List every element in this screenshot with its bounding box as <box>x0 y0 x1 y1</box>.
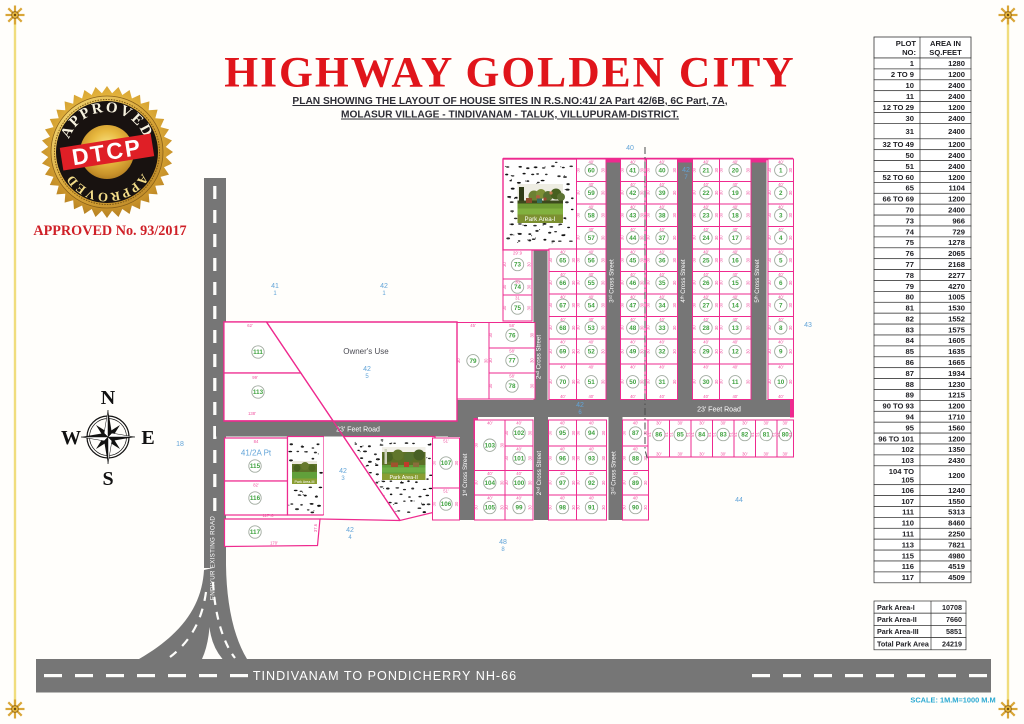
svg-text:30: 30 <box>548 349 553 354</box>
svg-text:40': 40' <box>560 250 566 255</box>
svg-text:84: 84 <box>906 336 915 345</box>
svg-text:3ʳᵈ Cross Street: 3ʳᵈ Cross Street <box>609 259 616 303</box>
svg-text:68: 68 <box>559 325 567 332</box>
svg-text:40': 40' <box>732 227 738 232</box>
svg-text:30: 30 <box>646 235 651 240</box>
svg-text:30: 30 <box>474 480 479 485</box>
svg-text:35: 35 <box>658 280 666 287</box>
svg-text:30: 30 <box>692 302 697 307</box>
svg-text:30: 30 <box>528 455 533 460</box>
svg-text:51': 51' <box>443 489 449 494</box>
svg-text:30: 30 <box>672 235 677 240</box>
svg-text:40': 40' <box>703 250 709 255</box>
svg-text:Park Area-II: Park Area-II <box>389 475 417 481</box>
svg-text:82': 82' <box>253 483 259 488</box>
svg-text:58: 58 <box>588 212 596 219</box>
svg-text:30: 30 <box>672 190 677 195</box>
svg-text:40': 40' <box>630 205 636 210</box>
svg-text:111: 111 <box>902 530 915 539</box>
svg-text:40': 40' <box>659 295 665 300</box>
svg-text:104: 104 <box>485 480 496 487</box>
svg-text:30: 30 <box>528 505 533 510</box>
svg-text:1104: 1104 <box>949 184 966 193</box>
svg-text:11: 11 <box>906 92 915 101</box>
svg-text:40': 40' <box>659 340 665 345</box>
svg-text:32: 32 <box>658 349 666 356</box>
svg-text:25: 25 <box>702 257 710 264</box>
svg-text:30: 30 <box>576 280 581 285</box>
svg-text:40': 40' <box>778 205 784 210</box>
svg-text:103: 103 <box>485 442 496 449</box>
svg-text:30: 30 <box>474 442 479 447</box>
svg-text:30: 30 <box>702 379 710 386</box>
svg-text:HIGHWAY GOLDEN CITY: HIGHWAY GOLDEN CITY <box>224 49 795 97</box>
svg-text:30: 30 <box>746 167 751 172</box>
svg-text:75: 75 <box>514 305 522 312</box>
svg-text:30: 30 <box>576 505 581 510</box>
svg-text:3: 3 <box>779 212 783 219</box>
svg-text:62': 62' <box>247 323 253 328</box>
svg-text:30: 30 <box>672 325 677 330</box>
svg-text:30: 30 <box>767 257 772 262</box>
svg-text:30: 30 <box>620 167 625 172</box>
svg-text:30: 30 <box>640 235 645 240</box>
svg-text:52 TO 60: 52 TO 60 <box>882 173 914 182</box>
svg-text:40': 40' <box>589 447 595 452</box>
svg-text:4ᵗʰ Cross Street: 4ᵗʰ Cross Street <box>680 259 687 303</box>
svg-text:42: 42 <box>576 402 584 409</box>
svg-text:65: 65 <box>906 184 915 193</box>
svg-text:30: 30 <box>622 505 627 510</box>
svg-text:1200: 1200 <box>948 103 965 112</box>
svg-text:30: 30 <box>601 167 606 172</box>
svg-text:40': 40' <box>659 250 665 255</box>
svg-text:40': 40' <box>732 394 738 399</box>
svg-text:30: 30 <box>788 302 793 307</box>
svg-text:10708: 10708 <box>942 603 962 612</box>
svg-text:2168: 2168 <box>948 260 965 269</box>
svg-text:57: 57 <box>588 235 596 242</box>
svg-text:37.6: 37.6 <box>313 523 318 532</box>
svg-text:56: 56 <box>588 257 596 264</box>
svg-text:30: 30 <box>719 257 724 262</box>
svg-text:98: 98 <box>559 505 567 512</box>
svg-text:S: S <box>102 468 113 490</box>
svg-text:81: 81 <box>763 432 771 439</box>
svg-text:30: 30 <box>432 460 437 465</box>
svg-text:53: 53 <box>588 325 596 332</box>
svg-text:46: 46 <box>629 280 637 287</box>
svg-text:91: 91 <box>588 505 596 512</box>
svg-text:30: 30 <box>788 167 793 172</box>
svg-text:30: 30 <box>672 212 677 217</box>
svg-text:30': 30' <box>782 421 788 426</box>
svg-text:52: 52 <box>588 349 596 356</box>
svg-text:83: 83 <box>906 325 914 334</box>
svg-text:88: 88 <box>906 380 914 389</box>
svg-text:40': 40' <box>659 394 665 399</box>
svg-text:40': 40' <box>516 496 522 501</box>
svg-text:30: 30 <box>640 325 645 330</box>
svg-text:40': 40' <box>703 227 709 232</box>
svg-text:24: 24 <box>702 235 710 242</box>
svg-text:40': 40' <box>630 295 636 300</box>
svg-text:115: 115 <box>902 551 915 560</box>
svg-text:40': 40' <box>778 160 784 165</box>
svg-text:30: 30 <box>620 325 625 330</box>
svg-text:30: 30 <box>746 325 751 330</box>
svg-text:30: 30 <box>527 305 532 310</box>
svg-text:40': 40' <box>659 365 665 370</box>
svg-text:30: 30 <box>646 257 651 262</box>
svg-text:30: 30 <box>746 280 751 285</box>
svg-text:40': 40' <box>588 365 594 370</box>
svg-text:30: 30 <box>646 167 651 172</box>
svg-text:85: 85 <box>677 432 685 439</box>
svg-text:6: 6 <box>779 280 783 287</box>
svg-text:1200: 1200 <box>948 173 965 182</box>
svg-text:1230: 1230 <box>948 380 965 389</box>
svg-text:PLAN SHOWING THE LAYOUT OF HOU: PLAN SHOWING THE LAYOUT OF HOUSE SITES I… <box>292 96 727 107</box>
svg-text:30: 30 <box>692 325 697 330</box>
svg-text:30: 30 <box>646 379 651 384</box>
svg-text:18: 18 <box>732 212 740 219</box>
svg-text:30: 30 <box>788 212 793 217</box>
svg-text:86: 86 <box>655 432 663 439</box>
svg-text:74: 74 <box>514 284 522 291</box>
svg-text:107: 107 <box>441 460 452 467</box>
svg-text:5851: 5851 <box>946 627 962 636</box>
svg-text:30: 30 <box>576 212 581 217</box>
svg-text:40: 40 <box>658 167 666 174</box>
svg-text:70: 70 <box>906 206 914 215</box>
svg-text:Park Area-III: Park Area-III <box>295 480 315 484</box>
svg-text:NO:: NO: <box>902 48 916 57</box>
svg-text:30: 30 <box>548 280 553 285</box>
svg-text:30: 30 <box>767 167 772 172</box>
svg-text:42: 42 <box>629 190 637 197</box>
svg-text:22: 22 <box>702 190 710 197</box>
svg-text:40': 40' <box>703 182 709 187</box>
svg-text:99': 99' <box>252 375 258 380</box>
svg-text:1200: 1200 <box>948 195 965 204</box>
svg-text:30: 30 <box>622 480 627 485</box>
svg-text:30: 30 <box>719 167 724 172</box>
svg-text:23' Feet Road: 23' Feet Road <box>697 407 741 414</box>
svg-text:8460: 8460 <box>948 519 965 528</box>
svg-text:40': 40' <box>732 340 738 345</box>
svg-text:40': 40' <box>630 365 636 370</box>
svg-text:30: 30 <box>746 190 751 195</box>
svg-text:40': 40' <box>589 471 595 476</box>
svg-text:15: 15 <box>732 280 740 287</box>
svg-text:73: 73 <box>906 216 914 225</box>
svg-text:30: 30 <box>640 379 645 384</box>
svg-text:30: 30 <box>719 280 724 285</box>
svg-text:36: 36 <box>658 257 666 264</box>
svg-text:7660: 7660 <box>946 615 962 624</box>
svg-text:75: 75 <box>906 238 915 247</box>
svg-text:30: 30 <box>601 325 606 330</box>
svg-text:1ˢᵗ Cross Street: 1ˢᵗ Cross Street <box>462 453 469 496</box>
svg-text:40': 40' <box>589 421 595 426</box>
svg-text:30: 30 <box>601 257 606 262</box>
svg-text:4509: 4509 <box>948 573 965 582</box>
svg-text:40': 40' <box>659 272 665 277</box>
svg-text:40': 40' <box>703 340 709 345</box>
svg-text:30: 30 <box>601 212 606 217</box>
svg-text:2400: 2400 <box>948 92 965 101</box>
svg-text:8: 8 <box>779 325 783 332</box>
svg-text:30: 30 <box>640 349 645 354</box>
svg-text:30: 30 <box>454 501 459 506</box>
svg-text:30: 30 <box>672 167 677 172</box>
svg-text:30: 30 <box>527 262 532 267</box>
svg-text:89: 89 <box>906 391 914 400</box>
svg-text:30: 30 <box>620 235 625 240</box>
svg-text:49: 49 <box>629 349 637 356</box>
svg-text:40': 40' <box>732 182 738 187</box>
svg-text:78: 78 <box>906 271 914 280</box>
svg-text:ENDIYUR EXISTING ROAD: ENDIYUR EXISTING ROAD <box>210 516 217 601</box>
svg-text:30: 30 <box>640 257 645 262</box>
svg-text:40': 40' <box>516 471 522 476</box>
svg-text:86: 86 <box>906 358 914 367</box>
svg-text:40': 40' <box>732 365 738 370</box>
svg-text:95: 95 <box>559 430 567 437</box>
svg-text:89: 89 <box>632 480 640 487</box>
svg-text:30: 30 <box>620 212 625 217</box>
svg-text:30: 30 <box>640 167 645 172</box>
svg-text:30: 30 <box>719 235 724 240</box>
svg-text:30': 30' <box>699 451 705 456</box>
svg-text:30: 30 <box>576 190 581 195</box>
svg-text:30: 30 <box>746 235 751 240</box>
svg-text:AREA IN: AREA IN <box>930 39 961 48</box>
svg-text:79: 79 <box>906 282 914 291</box>
svg-text:26: 26 <box>702 280 710 287</box>
svg-text:55: 55 <box>588 280 596 287</box>
svg-text:30: 30 <box>548 325 553 330</box>
svg-text:33: 33 <box>658 325 666 332</box>
svg-text:13: 13 <box>732 325 740 332</box>
svg-text:42: 42 <box>346 527 354 534</box>
svg-text:81: 81 <box>906 304 915 313</box>
svg-text:30': 30' <box>763 421 769 426</box>
svg-text:30: 30 <box>692 257 697 262</box>
svg-text:32 TO 49: 32 TO 49 <box>882 140 914 149</box>
svg-text:30: 30 <box>576 455 581 460</box>
svg-text:40': 40' <box>630 227 636 232</box>
svg-text:38: 38 <box>658 212 666 219</box>
svg-text:50: 50 <box>906 151 914 160</box>
svg-text:1200: 1200 <box>948 70 965 79</box>
svg-text:30: 30 <box>601 455 606 460</box>
svg-text:40': 40' <box>487 496 493 501</box>
svg-text:37: 37 <box>658 235 666 242</box>
svg-text:30: 30 <box>504 505 509 510</box>
svg-text:76: 76 <box>906 249 914 258</box>
svg-text:45: 45 <box>629 257 637 264</box>
svg-text:79: 79 <box>469 358 477 365</box>
svg-text:170': 170' <box>270 541 278 546</box>
svg-text:30: 30 <box>719 190 724 195</box>
svg-text:115: 115 <box>250 463 261 470</box>
svg-text:1200: 1200 <box>948 471 965 480</box>
svg-text:30': 30' <box>656 451 662 456</box>
svg-text:30: 30 <box>692 235 697 240</box>
svg-text:2277: 2277 <box>948 271 965 280</box>
svg-text:40': 40' <box>778 272 784 277</box>
svg-text:77: 77 <box>508 358 516 365</box>
svg-text:E: E <box>141 427 154 449</box>
svg-text:111: 111 <box>253 349 263 356</box>
svg-text:4980: 4980 <box>948 551 965 560</box>
svg-text:95: 95 <box>906 423 915 432</box>
svg-text:30: 30 <box>788 190 793 195</box>
svg-text:30': 30' <box>763 451 769 456</box>
svg-text:SCALE: 1M.M=1000 M.M: SCALE: 1M.M=1000 M.M <box>910 696 995 705</box>
svg-text:40': 40' <box>732 250 738 255</box>
svg-text:51: 51 <box>712 432 717 437</box>
svg-text:PLOT: PLOT <box>896 39 917 48</box>
svg-text:30: 30 <box>646 190 651 195</box>
svg-text:2ⁿᵈ Cross Street: 2ⁿᵈ Cross Street <box>536 335 543 379</box>
svg-text:65: 65 <box>559 257 567 264</box>
svg-text:23' Feet Road: 23' Feet Road <box>336 427 380 434</box>
svg-text:30: 30 <box>530 358 535 363</box>
svg-text:30: 30 <box>640 280 645 285</box>
svg-text:30: 30 <box>474 505 479 510</box>
svg-text:30: 30 <box>576 302 581 307</box>
svg-text:30: 30 <box>548 257 553 262</box>
svg-text:2065: 2065 <box>948 249 966 258</box>
svg-text:30: 30 <box>692 167 697 172</box>
svg-text:30: 30 <box>646 212 651 217</box>
svg-text:W: W <box>61 427 81 449</box>
svg-text:1665: 1665 <box>948 358 966 367</box>
svg-text:1552: 1552 <box>948 314 965 323</box>
svg-text:90: 90 <box>632 505 640 512</box>
svg-text:30: 30 <box>601 349 606 354</box>
svg-text:43: 43 <box>804 322 812 329</box>
svg-text:1280: 1280 <box>948 59 965 68</box>
svg-text:40': 40' <box>560 365 566 370</box>
svg-text:40': 40' <box>588 394 594 399</box>
svg-text:51: 51 <box>776 432 781 437</box>
svg-text:7821: 7821 <box>948 540 966 549</box>
svg-text:76: 76 <box>508 332 516 339</box>
svg-text:30: 30 <box>719 325 724 330</box>
svg-text:30: 30 <box>767 212 772 217</box>
svg-text:40': 40' <box>630 182 636 187</box>
svg-text:30: 30 <box>620 280 625 285</box>
svg-text:12: 12 <box>732 349 740 356</box>
svg-text:40': 40' <box>703 205 709 210</box>
svg-text:1200: 1200 <box>948 402 965 411</box>
svg-text:30: 30 <box>906 114 914 123</box>
svg-text:74: 74 <box>906 227 915 236</box>
svg-text:30: 30 <box>601 302 606 307</box>
svg-text:30: 30 <box>502 262 507 267</box>
svg-text:45': 45' <box>470 323 476 328</box>
svg-text:40': 40' <box>732 295 738 300</box>
svg-text:92: 92 <box>588 480 596 487</box>
svg-text:1934: 1934 <box>948 369 966 378</box>
svg-text:30: 30 <box>788 379 793 384</box>
svg-text:40': 40' <box>703 394 709 399</box>
svg-text:30: 30 <box>767 302 772 307</box>
svg-text:30': 30' <box>720 421 726 426</box>
svg-text:40': 40' <box>703 295 709 300</box>
svg-text:40: 40 <box>626 145 634 152</box>
svg-text:30': 30' <box>656 421 662 426</box>
svg-text:30: 30 <box>504 455 509 460</box>
svg-text:51': 51' <box>443 439 449 444</box>
svg-text:30: 30 <box>500 442 505 447</box>
svg-text:1278: 1278 <box>948 238 965 247</box>
svg-text:48: 48 <box>629 325 637 332</box>
svg-text:103: 103 <box>901 456 914 465</box>
svg-text:51: 51 <box>733 432 738 437</box>
svg-text:40': 40' <box>703 317 709 322</box>
svg-text:93: 93 <box>588 455 596 462</box>
svg-text:40': 40' <box>560 317 566 322</box>
svg-text:40': 40' <box>560 272 566 277</box>
svg-text:66: 66 <box>559 280 567 287</box>
svg-text:30: 30 <box>767 379 772 384</box>
svg-text:41: 41 <box>629 167 637 174</box>
svg-text:40': 40' <box>588 295 594 300</box>
svg-text:51: 51 <box>788 432 793 437</box>
svg-text:40': 40' <box>588 317 594 322</box>
svg-text:30: 30 <box>692 280 697 285</box>
svg-text:31: 31 <box>906 127 915 136</box>
svg-text:30: 30 <box>746 349 751 354</box>
svg-text:30: 30 <box>601 280 606 285</box>
svg-text:2400: 2400 <box>948 114 965 123</box>
svg-text:54: 54 <box>588 302 596 309</box>
svg-text:30: 30 <box>672 302 677 307</box>
svg-text:51: 51 <box>755 432 760 437</box>
svg-text:40': 40' <box>588 272 594 277</box>
svg-text:47: 47 <box>629 302 637 309</box>
svg-text:42: 42 <box>380 283 388 290</box>
svg-text:30: 30 <box>788 280 793 285</box>
svg-text:42: 42 <box>682 167 690 174</box>
svg-text:24219: 24219 <box>942 639 962 648</box>
svg-text:30': 30' <box>782 451 788 456</box>
svg-text:30: 30 <box>692 349 697 354</box>
svg-text:30: 30 <box>767 325 772 330</box>
svg-text:40': 40' <box>560 421 566 426</box>
svg-text:2400: 2400 <box>948 206 965 215</box>
svg-text:30: 30 <box>746 302 751 307</box>
svg-text:30: 30 <box>646 325 651 330</box>
svg-text:77: 77 <box>906 260 914 269</box>
svg-text:30: 30 <box>640 212 645 217</box>
svg-text:30: 30 <box>622 455 627 460</box>
svg-text:17: 17 <box>732 235 740 242</box>
svg-text:40': 40' <box>516 447 522 452</box>
svg-text:40': 40' <box>560 496 566 501</box>
svg-text:51: 51 <box>669 432 674 437</box>
svg-text:30: 30 <box>640 190 645 195</box>
svg-text:16: 16 <box>732 257 740 264</box>
svg-text:51: 51 <box>906 162 915 171</box>
svg-text:40': 40' <box>487 421 493 426</box>
svg-text:40': 40' <box>588 227 594 232</box>
